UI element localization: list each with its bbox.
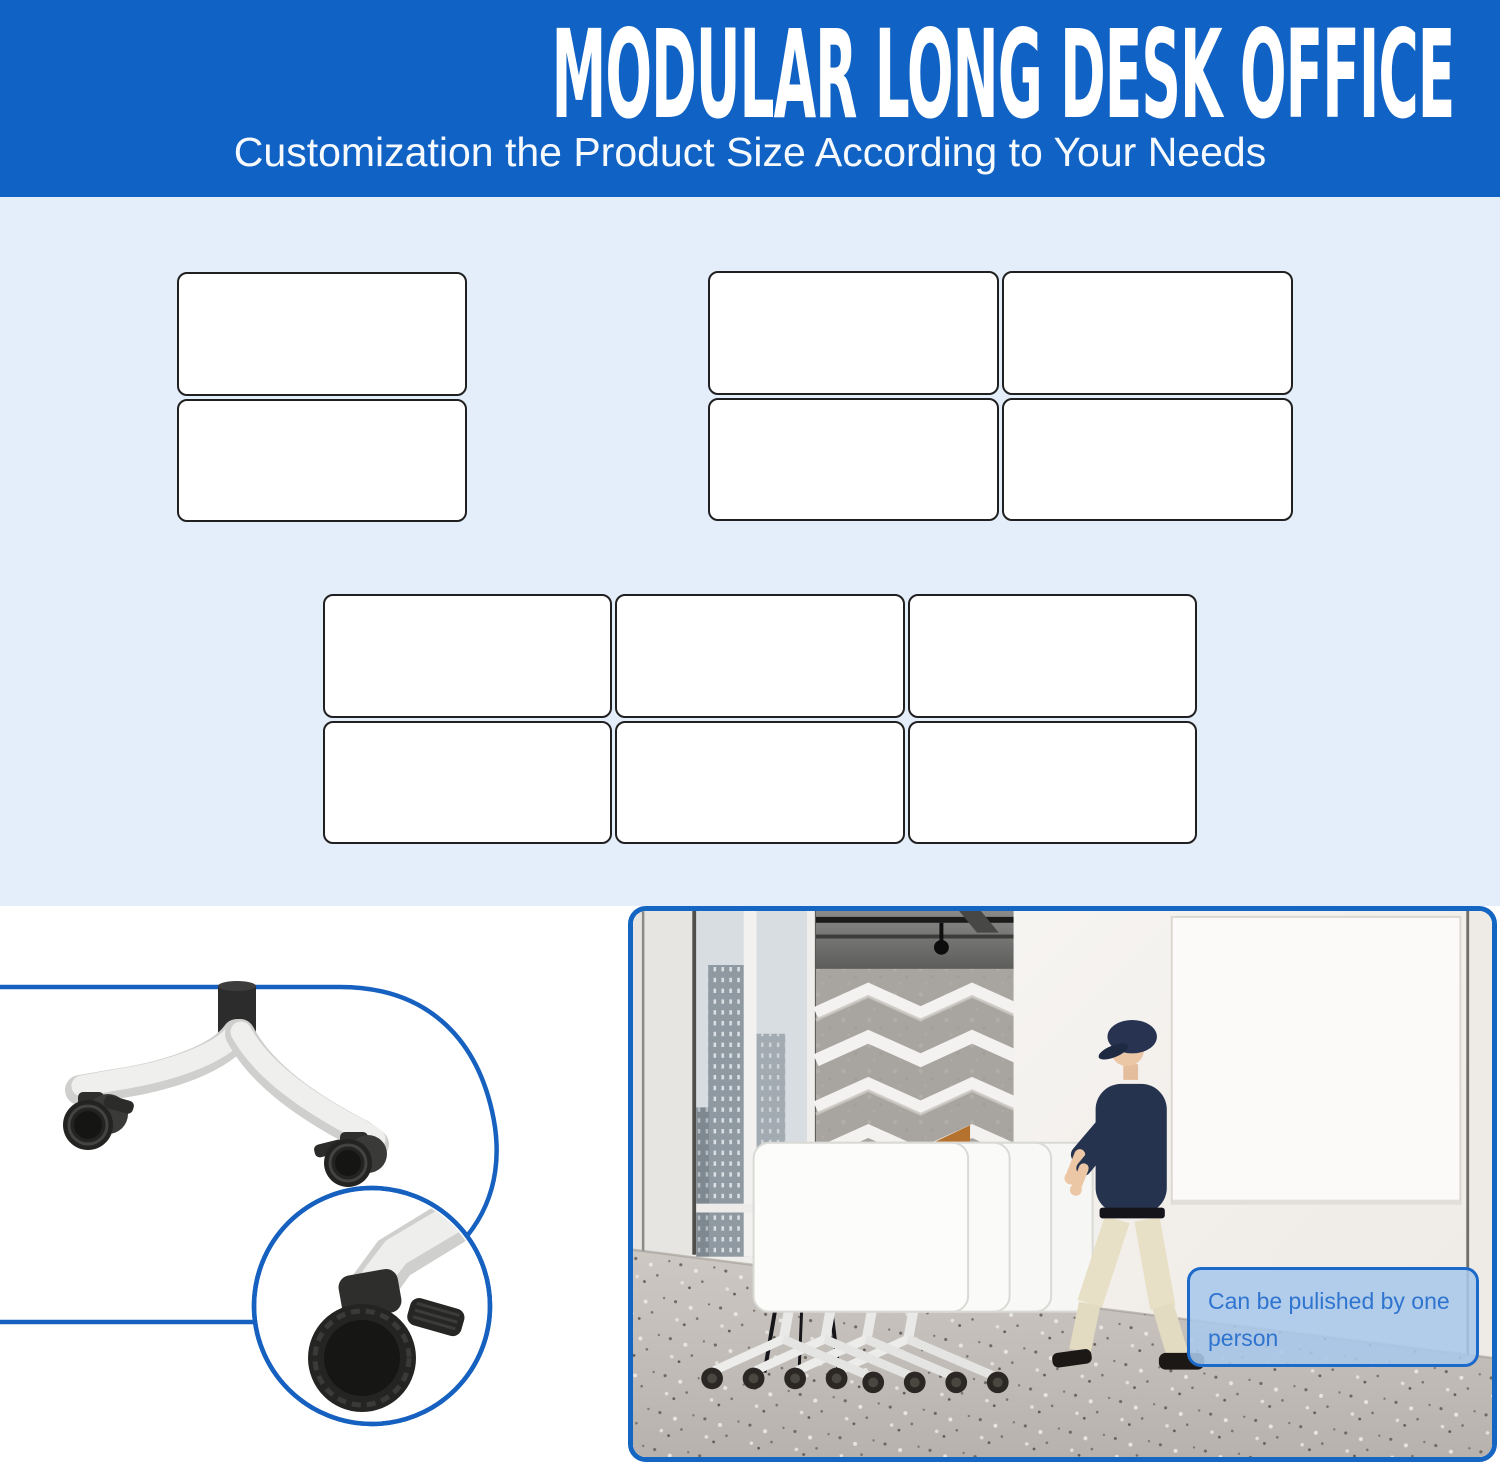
layout-section [0,197,1500,906]
desk-top-cell [708,271,999,395]
desk-top-cell [908,721,1197,845]
glass-wall-left [633,911,696,1255]
page-subtitle: Customization the Product Size According… [0,130,1500,175]
desk-top-cell [1002,271,1293,395]
desk-top-cell [1002,398,1293,522]
product-infographic: MODULAR LONG DESK OFFICE Customization t… [0,0,1500,1466]
desk-top-cell [323,721,612,845]
caster-detail-graphic [0,906,628,1466]
desk-top-cell [177,399,467,523]
desk-top-cell [177,272,467,396]
desk-top-cell [323,594,612,718]
caster-wheel-right [313,1132,387,1187]
desk-top-cell [708,398,999,522]
page-title: MODULAR LONG DESK OFFICE [0,14,1500,136]
table-leg-photo [63,981,387,1187]
office-scene-graphic [633,911,1492,1457]
desk-top-cell [615,721,904,845]
header-banner: MODULAR LONG DESK OFFICE Customization t… [0,0,1500,197]
desk-group-1x2 [177,272,467,522]
belt [1100,1208,1165,1219]
caption-text: Can be pulished by one person [1208,1288,1450,1351]
bottom-section: Can be pulished by one person [0,906,1500,1466]
caption-box: Can be pulished by one person [1187,1267,1479,1367]
desk-top-cell [615,594,904,718]
whiteboard [1172,917,1461,1204]
concrete-ceiling [816,911,1025,969]
photo-panel: Can be pulished by one person [628,906,1497,1462]
desk-group-3x2 [323,594,1197,844]
desk-group-2x2 [708,271,1293,521]
desk-top-cell [908,594,1197,718]
